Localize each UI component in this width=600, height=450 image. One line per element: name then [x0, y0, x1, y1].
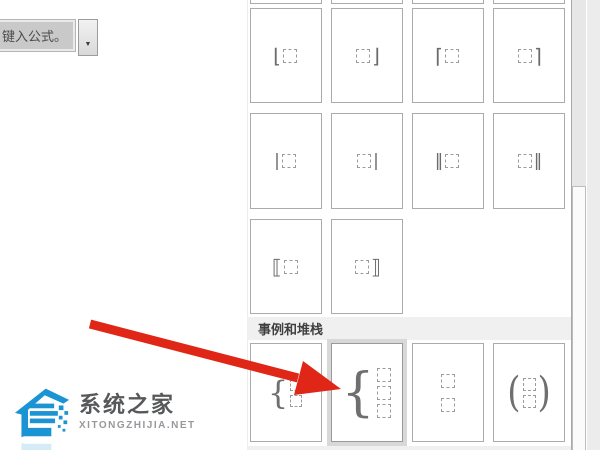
watermark-subtitle: XITONGZHIJIA.NET: [79, 420, 196, 431]
bracket-glyph: ‖: [534, 153, 543, 170]
placeholder-box: [377, 386, 391, 400]
brace-glyph: {: [341, 367, 374, 419]
scrollbar-thumb[interactable]: [572, 186, 586, 450]
bracket-option-partial[interactable]: [412, 0, 484, 4]
equation-dropdown-button[interactable]: ▼: [78, 19, 98, 56]
cases-stack: [375, 366, 393, 420]
bracket-option-right-bar[interactable]: |: [331, 113, 403, 209]
bracket-option-left-white-bracket[interactable]: ⟦: [250, 219, 322, 314]
bracket-option-partial[interactable]: [493, 0, 565, 4]
binomial-option[interactable]: ( ): [493, 343, 565, 442]
bracket-option-right-double-bar[interactable]: ‖: [493, 113, 565, 209]
cases-option-three[interactable]: {: [331, 343, 403, 442]
watermark: 系统之家 XITONGZHIJIA.NET 系统之家: [14, 384, 196, 450]
bracket-glyph: ⌉: [534, 46, 542, 66]
placeholder-box: [284, 260, 298, 274]
bracket-glyph: ⌈: [435, 46, 443, 66]
bracket-option-left-ceiling[interactable]: ⌈: [412, 8, 484, 103]
placeholder-box: [290, 395, 302, 407]
placeholder-box: [377, 404, 391, 418]
stack-option-plain[interactable]: [412, 343, 484, 442]
bracket-option-right-floor[interactable]: ⌋: [331, 8, 403, 103]
section-header-cases-and-stacks: 事例和堆栈: [247, 317, 571, 340]
bracket-option-right-white-bracket[interactable]: ⟧: [331, 219, 403, 314]
dropdown-arrow-icon: ▼: [85, 41, 92, 48]
bracket-glyph: |: [274, 153, 280, 170]
bracket-option-partial[interactable]: [250, 0, 322, 4]
placeholder-box: [356, 49, 370, 63]
cases-option-two[interactable]: {: [250, 343, 322, 442]
bracket-option-right-ceiling[interactable]: ⌉: [493, 8, 565, 103]
cases-stack: [521, 376, 538, 410]
placeholder-box: [445, 49, 459, 63]
placeholder-box: [377, 368, 391, 382]
placeholder-box: [283, 49, 297, 63]
placeholder-box: [290, 379, 302, 391]
bracket-glyph: ⟧: [371, 257, 381, 277]
section-header-label: 事例和堆栈: [258, 319, 323, 338]
watermark-reflection: 系统之家 XITONGZHIJIA.NET: [14, 440, 196, 450]
word-equation-bracket-gallery: 键入公式。 ▼ ⌊ ⌋ ⌈ ⌉ | | ‖ ‖ ⟦ ⟧ 事例和堆栈: [0, 0, 600, 450]
xitongzhijia-logo-icon: [14, 384, 70, 440]
bracket-glyph: ⟦: [272, 257, 282, 277]
cases-stack: [288, 377, 304, 409]
paren-left-glyph: (: [507, 372, 520, 413]
placeholder-box: [357, 154, 371, 168]
placeholder-box: [355, 260, 369, 274]
placeholder-box: [441, 398, 455, 412]
paren-right-glyph: ): [538, 372, 551, 413]
placeholder-box: [523, 395, 536, 408]
bracket-option-partial[interactable]: [331, 0, 403, 4]
bracket-glyph: ‖: [435, 153, 444, 170]
placeholder-box: [523, 378, 536, 391]
bracket-glyph: |: [373, 153, 379, 170]
bracket-option-left-bar[interactable]: |: [250, 113, 322, 209]
bracket-option-left-double-bar[interactable]: ‖: [412, 113, 484, 209]
watermark-title: 系统之家: [79, 393, 196, 417]
placeholder-box: [441, 374, 455, 388]
equation-placeholder-text: 键入公式。: [2, 26, 67, 45]
bracket-glyph: ⌋: [372, 46, 380, 66]
right-gutter: [587, 0, 600, 450]
xitongzhijia-logo-icon-reflection: [14, 440, 70, 450]
cases-stack: [439, 369, 457, 417]
placeholder-box: [282, 154, 296, 168]
placeholder-box: [518, 154, 532, 168]
equation-placeholder-box[interactable]: 键入公式。: [0, 19, 76, 52]
brace-glyph: {: [268, 377, 288, 409]
placeholder-box: [445, 154, 459, 168]
placeholder-box: [518, 49, 532, 63]
section-header-clipped: [247, 446, 571, 450]
bracket-glyph: ⌊: [273, 46, 281, 66]
bracket-option-left-floor[interactable]: ⌊: [250, 8, 322, 103]
